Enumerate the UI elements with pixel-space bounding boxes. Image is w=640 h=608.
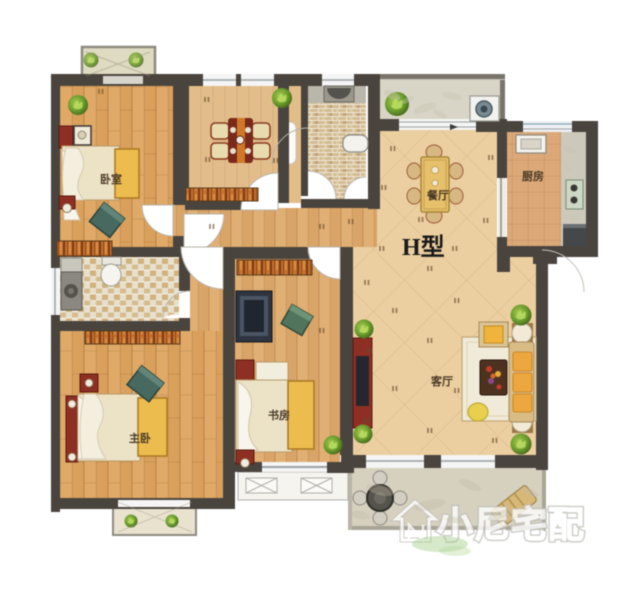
svg-text:H型: H型 <box>402 234 445 261</box>
svg-text:餐厅: 餐厅 <box>426 188 449 202</box>
svg-text:客厅: 客厅 <box>430 374 453 388</box>
svg-text:厨房: 厨房 <box>522 169 544 183</box>
svg-text:书房: 书房 <box>268 408 290 422</box>
svg-text:卧室: 卧室 <box>100 172 122 186</box>
svg-text:主卧: 主卧 <box>129 431 151 445</box>
